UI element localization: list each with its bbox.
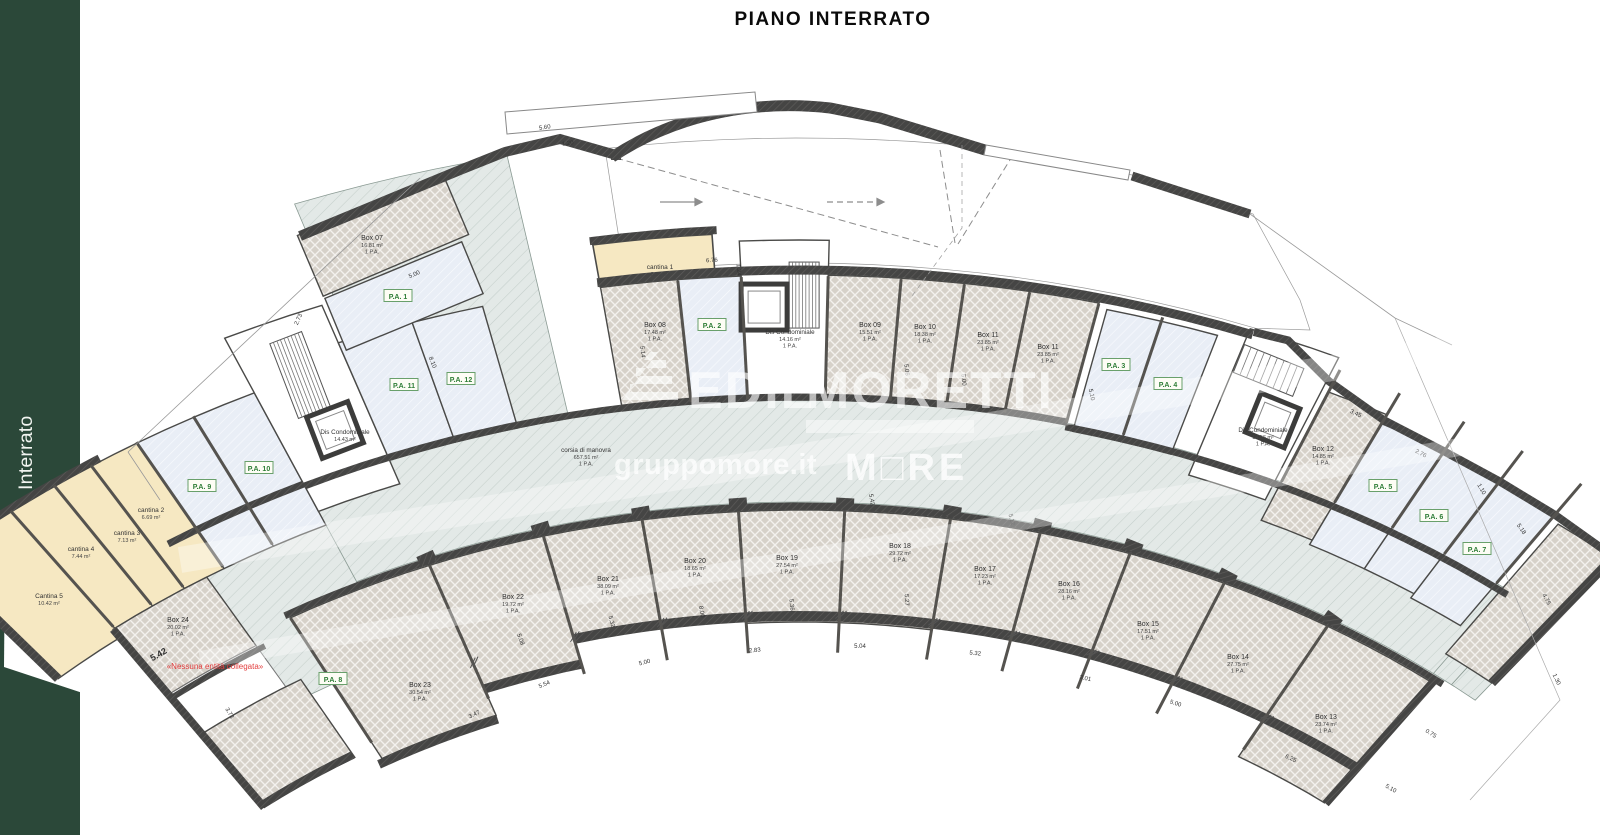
svg-text:14.43 m²: 14.43 m²: [334, 437, 356, 443]
svg-text:Cantina 5: Cantina 5: [35, 593, 63, 600]
svg-text:P.A. 1: P.A. 1: [389, 294, 408, 301]
svg-text:1 P.A.: 1 P.A.: [688, 573, 703, 579]
svg-text:M□RE: M□RE: [845, 447, 968, 492]
svg-text:1 P.A.: 1 P.A.: [863, 337, 878, 343]
svg-text:5.32: 5.32: [969, 650, 982, 657]
svg-text:1 P.A.: 1 P.A.: [918, 339, 933, 345]
svg-text:corsia di manovra: corsia di manovra: [561, 447, 611, 454]
svg-text:cantina 3: cantina 3: [114, 530, 141, 537]
svg-text:Box 08: Box 08: [644, 322, 666, 329]
svg-text:18.38 m²: 18.38 m²: [914, 332, 936, 338]
svg-text:cantina 2: cantina 2: [138, 507, 165, 514]
svg-text:Box 07: Box 07: [361, 235, 383, 242]
svg-text:2.83: 2.83: [749, 647, 762, 654]
svg-text:16.81 m²: 16.81 m²: [361, 243, 383, 249]
svg-text:P.A. 6: P.A. 6: [1425, 514, 1444, 521]
svg-text:P.A. 5: P.A. 5: [1374, 484, 1393, 491]
svg-text:1 P.A.: 1 P.A.: [1231, 669, 1246, 675]
svg-text:Box 09: Box 09: [859, 322, 881, 329]
svg-text:1 P.A.: 1 P.A.: [1062, 596, 1077, 602]
svg-text:1 P.A.: 1 P.A.: [783, 344, 798, 350]
svg-text:6.69 m²: 6.69 m²: [142, 515, 161, 521]
svg-text:657.51 m²: 657.51 m²: [574, 455, 599, 461]
svg-text:Box 15: Box 15: [1137, 621, 1159, 628]
svg-text:1 P.A.: 1 P.A.: [648, 337, 663, 343]
svg-text:Box 24: Box 24: [167, 617, 189, 624]
svg-text:1 P.A.: 1 P.A.: [171, 632, 186, 638]
svg-text:27.54 m²: 27.54 m²: [776, 563, 798, 569]
svg-text:Box 13: Box 13: [1315, 714, 1337, 721]
svg-text:Box 18: Box 18: [889, 543, 911, 550]
svg-text:20.02 m²: 20.02 m²: [167, 625, 189, 631]
svg-text:P.A. 10: P.A. 10: [248, 466, 271, 473]
svg-text:1 P.A.: 1 P.A.: [1316, 461, 1331, 467]
svg-text:«Nessuna entità collegata»: «Nessuna entità collegata»: [167, 662, 264, 671]
svg-text:23.85 m²: 23.85 m²: [1037, 352, 1059, 358]
svg-text:6.76: 6.76: [706, 258, 719, 265]
svg-text:30.54 m²: 30.54 m²: [409, 690, 431, 696]
svg-text:cantina 1: cantina 1: [647, 264, 674, 271]
svg-text:23.74 m²: 23.74 m²: [1315, 722, 1337, 728]
svg-text:gruppomore.it: gruppomore.it: [614, 449, 817, 481]
svg-text:8.26 m²: 8.26 m²: [651, 272, 670, 278]
svg-text:P.A. 9: P.A. 9: [193, 484, 212, 491]
svg-text:Dis Condominiale: Dis Condominiale: [765, 329, 815, 336]
svg-text:P.A. 12: P.A. 12: [450, 377, 473, 384]
svg-text:1 P.A.: 1 P.A.: [1256, 442, 1271, 448]
svg-text:Box 22: Box 22: [502, 594, 524, 601]
svg-text:MORETTI: MORETTI: [806, 362, 1054, 420]
svg-text:1 P.A.: 1 P.A.: [1319, 729, 1334, 735]
svg-text:P.A. 3: P.A. 3: [1107, 363, 1126, 370]
svg-text:19.72 m²: 19.72 m²: [502, 602, 524, 608]
svg-text:1.24: 1.24: [735, 264, 742, 277]
svg-text:14.16 m²: 14.16 m²: [779, 337, 801, 343]
svg-text:Box 14: Box 14: [1227, 654, 1249, 661]
svg-text:cantina 4: cantina 4: [68, 546, 95, 553]
svg-text:Box 16: Box 16: [1058, 581, 1080, 588]
svg-text:1 P.A.: 1 P.A.: [413, 697, 428, 703]
svg-text:Box 17: Box 17: [974, 566, 996, 573]
svg-text:17.51 m²: 17.51 m²: [1137, 629, 1159, 635]
svg-text:7.13 m²: 7.13 m²: [118, 538, 137, 544]
svg-text:P.A. 11: P.A. 11: [393, 383, 415, 390]
svg-text:5.04: 5.04: [854, 644, 866, 650]
svg-text:1 P.A.: 1 P.A.: [506, 609, 521, 615]
svg-text:28.16 m²: 28.16 m²: [1058, 589, 1080, 595]
svg-text:23.85 m²: 23.85 m²: [977, 340, 999, 346]
svg-text:1 P.A.: 1 P.A.: [893, 558, 908, 564]
svg-text:14.56 m²: 14.56 m²: [1252, 435, 1274, 441]
svg-text:Box 21: Box 21: [597, 576, 619, 583]
svg-text:PIANO INTERRATO: PIANO INTERRATO: [734, 9, 931, 30]
svg-text:7.44 m²: 7.44 m²: [72, 554, 91, 560]
svg-text:29.72 m²: 29.72 m²: [889, 551, 911, 557]
svg-text:1 P.A.: 1 P.A.: [1041, 359, 1056, 365]
svg-text:1 P.A.: 1 P.A.: [981, 347, 996, 353]
svg-text:Dis Condominiale: Dis Condominiale: [320, 429, 370, 436]
svg-text:Dis Condominiale: Dis Condominiale: [1238, 427, 1288, 434]
svg-text:10.42 m²: 10.42 m²: [38, 601, 60, 607]
svg-text:Box 12: Box 12: [1312, 446, 1334, 453]
svg-text:Box 11: Box 11: [1037, 344, 1058, 351]
svg-text:EDIL: EDIL: [688, 362, 814, 420]
svg-text:Box 11: Box 11: [977, 332, 998, 339]
svg-text:14.85 m²: 14.85 m²: [1312, 454, 1334, 460]
svg-text:15.51 m²: 15.51 m²: [859, 330, 881, 336]
svg-text:P.A. 4: P.A. 4: [1159, 382, 1178, 389]
svg-text:5.36: 5.36: [787, 599, 794, 612]
svg-text:17.23 m²: 17.23 m²: [974, 574, 996, 580]
svg-text:1 P.A.: 1 P.A.: [978, 581, 993, 587]
svg-text:18.65 m²: 18.65 m²: [684, 566, 706, 572]
svg-text:P.A. 2: P.A. 2: [703, 323, 722, 330]
svg-text:1 P.A.: 1 P.A.: [365, 250, 380, 256]
svg-text:38.09 m²: 38.09 m²: [597, 584, 619, 590]
svg-text:1 P.A.: 1 P.A.: [1141, 636, 1156, 642]
svg-text:1 P.A.: 1 P.A.: [579, 462, 594, 468]
svg-text:P.A. 7: P.A. 7: [1468, 547, 1487, 554]
svg-text:27.75 m²: 27.75 m²: [1227, 662, 1249, 668]
svg-text:5.27: 5.27: [903, 594, 909, 607]
svg-text:1 P.A.: 1 P.A.: [601, 591, 616, 597]
svg-text:P.A. 8: P.A. 8: [324, 677, 343, 684]
svg-text:Box 10: Box 10: [914, 324, 936, 331]
svg-text:Box 19: Box 19: [776, 555, 798, 562]
svg-text:1 P.A.: 1 P.A.: [780, 570, 795, 576]
svg-text:Box 20: Box 20: [684, 558, 706, 565]
svg-text:17.48 m²: 17.48 m²: [644, 330, 666, 336]
svg-text:Box 23: Box 23: [409, 682, 431, 689]
